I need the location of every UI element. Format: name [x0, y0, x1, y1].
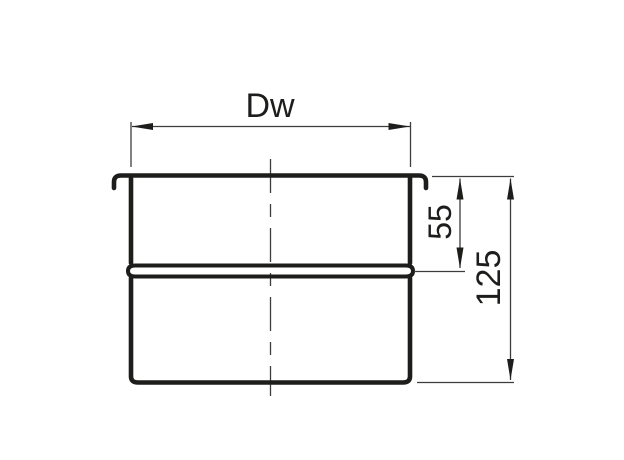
dim125-arrow-up	[507, 179, 514, 200]
dim125-label: 125	[470, 250, 508, 307]
technical-drawing-canvas: Dw 55 125	[0, 0, 624, 460]
seam-upper-line	[128, 266, 413, 272]
dim125-arrow-down	[507, 359, 514, 380]
dim55-arrow-down	[457, 248, 464, 269]
dw-dimension-label: Dw	[245, 87, 295, 125]
pipe-socket-drawing: Dw 55 125	[0, 0, 624, 460]
dw-arrow-left	[132, 123, 154, 130]
dw-arrow-right	[389, 123, 411, 130]
dim55-arrow-up	[457, 179, 464, 200]
dim55-label: 55	[422, 204, 458, 240]
